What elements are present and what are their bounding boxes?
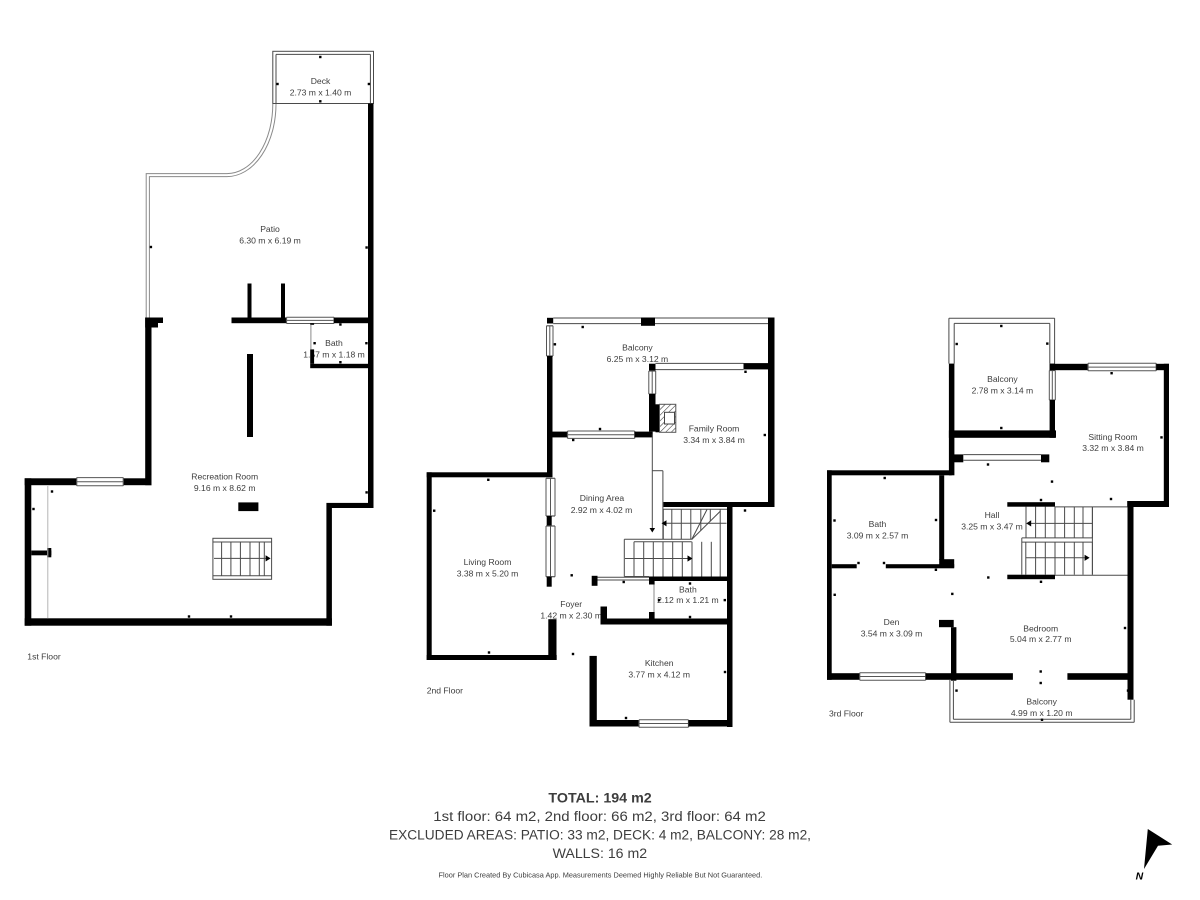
- svg-text:3.32 m x 3.84 m: 3.32 m x 3.84 m: [1082, 443, 1144, 453]
- svg-text:Bath: Bath: [679, 585, 697, 595]
- svg-text:1.42 m x 2.30 m: 1.42 m x 2.30 m: [540, 610, 602, 620]
- svg-text:Bedroom: Bedroom: [1023, 624, 1058, 634]
- svg-text:Kitchen: Kitchen: [645, 658, 674, 668]
- svg-text:Recreation Room: Recreation Room: [191, 472, 258, 482]
- svg-text:Living Room: Living Room: [464, 557, 512, 567]
- svg-text:2nd Floor: 2nd Floor: [427, 686, 463, 696]
- svg-text:Sitting Room: Sitting Room: [1088, 432, 1137, 442]
- svg-text:3.38 m x 5.20 m: 3.38 m x 5.20 m: [457, 568, 519, 578]
- svg-text:Bath: Bath: [325, 338, 343, 348]
- svg-text:2.73 m x 1.40 m: 2.73 m x 1.40 m: [290, 88, 352, 98]
- svg-text:Balcony: Balcony: [1026, 697, 1057, 707]
- svg-text:6.25 m x 3.12 m: 6.25 m x 3.12 m: [607, 354, 669, 364]
- svg-text:Balcony: Balcony: [987, 374, 1018, 384]
- svg-text:2.92 m x 4.02 m: 2.92 m x 4.02 m: [571, 505, 633, 515]
- svg-text:WALLS: 16 m2: WALLS: 16 m2: [553, 846, 648, 861]
- svg-text:3.25 m x 3.47 m: 3.25 m x 3.47 m: [961, 521, 1023, 531]
- svg-text:2.12 m x 1.21 m: 2.12 m x 1.21 m: [657, 595, 719, 605]
- svg-text:1st Floor: 1st Floor: [27, 652, 61, 662]
- svg-text:EXCLUDED AREAS: PATIO: 33 m2,: EXCLUDED AREAS: PATIO: 33 m2, DECK: 4 m2…: [389, 827, 811, 842]
- svg-text:2.78 m x 3.14 m: 2.78 m x 3.14 m: [972, 385, 1034, 395]
- svg-text:TOTAL: 194 m2: TOTAL: 194 m2: [548, 790, 651, 805]
- svg-text:Dining Area: Dining Area: [580, 493, 625, 503]
- svg-text:Bath: Bath: [869, 519, 887, 529]
- svg-text:3.34 m x 3.84 m: 3.34 m x 3.84 m: [683, 435, 745, 445]
- svg-text:6.30 m x 6.19 m: 6.30 m x 6.19 m: [239, 235, 301, 245]
- svg-text:Patio: Patio: [260, 224, 280, 234]
- svg-text:3.77 m x 4.12 m: 3.77 m x 4.12 m: [628, 670, 690, 680]
- svg-text:3.54 m x 3.09 m: 3.54 m x 3.09 m: [861, 629, 923, 639]
- svg-text:Den: Den: [884, 617, 900, 627]
- svg-text:Family Room: Family Room: [689, 423, 740, 433]
- svg-text:5.04 m x 2.77 m: 5.04 m x 2.77 m: [1010, 634, 1072, 644]
- svg-text:3rd Floor: 3rd Floor: [829, 708, 864, 718]
- svg-text:Balcony: Balcony: [622, 342, 653, 352]
- svg-text:3.09 m x 2.57 m: 3.09 m x 2.57 m: [847, 531, 909, 541]
- svg-text:Deck: Deck: [311, 76, 331, 86]
- svg-text:N: N: [1136, 871, 1144, 883]
- svg-text:Floor Plan Created By Cubicasa: Floor Plan Created By Cubicasa App. Meas…: [439, 871, 763, 880]
- svg-text:9.16 m x 8.62 m: 9.16 m x 8.62 m: [194, 483, 256, 493]
- svg-text:Foyer: Foyer: [560, 599, 582, 609]
- svg-text:1st floor: 64 m2, 2nd floor: 6: 1st floor: 64 m2, 2nd floor: 66 m2, 3rd …: [433, 809, 766, 824]
- svg-text:Hall: Hall: [985, 510, 1000, 520]
- svg-text:4.99 m x 1.20 m: 4.99 m x 1.20 m: [1011, 708, 1073, 718]
